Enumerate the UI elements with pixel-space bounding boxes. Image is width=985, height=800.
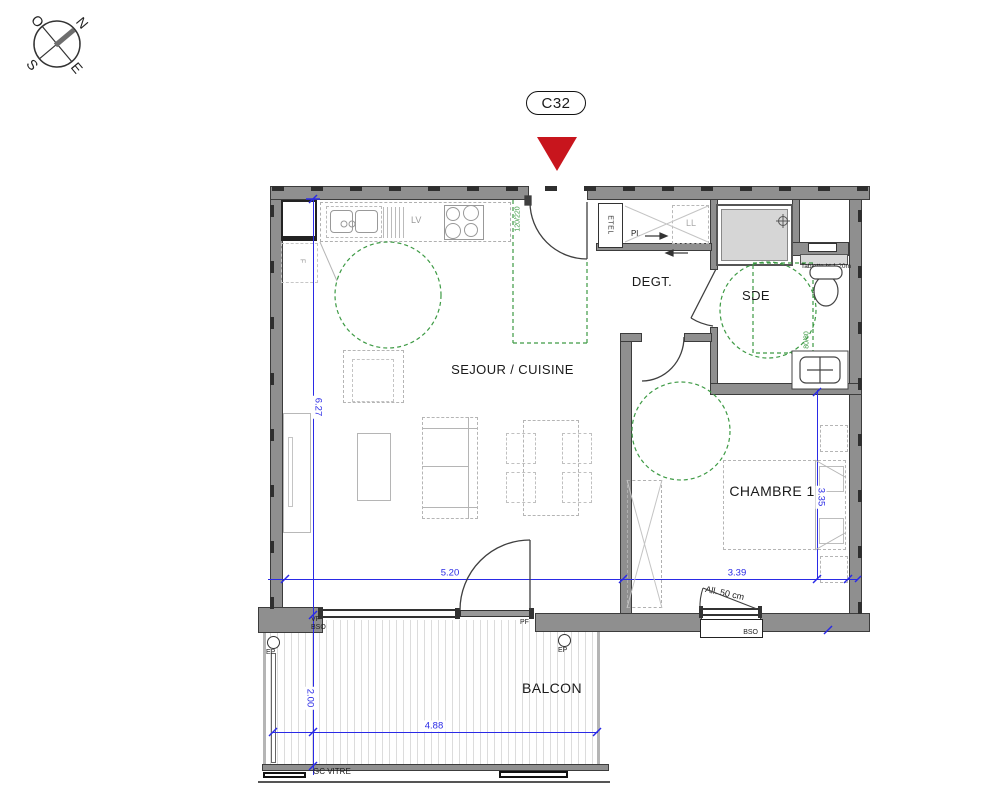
sde-door xyxy=(691,269,716,326)
dim-sejour-depth: 6.27 xyxy=(313,396,324,419)
window-vf xyxy=(320,609,460,618)
sofa-arm-bottom xyxy=(422,507,478,508)
ep-right-label: EP xyxy=(558,647,567,654)
coffee-table xyxy=(357,433,391,501)
compass-icon: N E S O xyxy=(4,0,112,97)
ground-line xyxy=(258,781,610,783)
compass-n: N xyxy=(73,14,92,32)
sofa-divider xyxy=(422,466,468,467)
wall-sde-bottom xyxy=(710,383,862,395)
sink-right xyxy=(355,210,378,233)
sink-left xyxy=(330,210,353,233)
wall-bottom-right xyxy=(760,613,870,632)
ep-left-label: EP xyxy=(266,649,275,656)
shower-size-label: 80/80 xyxy=(804,330,811,350)
dining-chair-2 xyxy=(506,472,536,503)
entry-door xyxy=(525,196,587,259)
washing-machine-label: LL xyxy=(686,218,696,228)
dim-balcon-depth: 2.00 xyxy=(305,687,316,710)
sofa xyxy=(422,417,478,519)
ep-drain-left xyxy=(267,636,280,649)
fridge-label: F xyxy=(299,259,306,263)
room-label-chambre: CHAMBRE 1 xyxy=(722,483,822,499)
door-pf-threshold xyxy=(460,610,531,617)
wall-chambre-door-left xyxy=(620,333,642,342)
allege-label: All. 50 cm xyxy=(704,584,745,602)
unit-badge: C32 xyxy=(526,91,586,115)
fridge-door xyxy=(320,242,337,281)
pillow-bottom xyxy=(819,518,844,544)
tablette-label: Tablette ht 1.20m xyxy=(801,263,851,270)
hob xyxy=(444,205,484,240)
drainboard xyxy=(383,207,405,238)
sideboard-inner xyxy=(288,437,293,507)
toilet-icon xyxy=(810,266,842,306)
chambre-door xyxy=(642,337,684,381)
window-chambre-post-right xyxy=(758,606,762,618)
room-label-sejour: SEJOUR / CUISINE xyxy=(440,362,585,377)
compass-s: S xyxy=(23,56,41,73)
sofa-back xyxy=(468,417,469,519)
dishwasher-label: LV xyxy=(411,215,421,225)
wall-bottom-center xyxy=(535,613,702,632)
entry-door-size-label: 120/220 xyxy=(515,205,522,232)
etel-label: ETEL xyxy=(607,215,614,235)
tablette-tag: Tablette ht 1.20m xyxy=(800,254,848,265)
column-fridge xyxy=(281,200,317,241)
bso-window-label: BSO xyxy=(743,629,758,636)
balcony-right-edge xyxy=(597,632,600,766)
floor-plan: BSO F LV ETEL LL Pl. Tablette ht 1.20m xyxy=(0,0,985,800)
sofa-arm-top xyxy=(422,428,478,429)
dining-chair-1 xyxy=(506,433,536,464)
door-pf-post xyxy=(529,608,534,619)
nightstand-top xyxy=(820,425,848,452)
balcony-glass-divider xyxy=(271,653,276,763)
room-label-degt: DEGT. xyxy=(613,274,691,289)
pf-label: PF xyxy=(520,619,529,626)
dining-chair-4 xyxy=(562,472,592,503)
window-chambre-post-left xyxy=(699,606,703,618)
room-label-balcon: BALCON xyxy=(517,680,587,696)
entry-marker-icon xyxy=(537,137,577,171)
armchair-seat xyxy=(352,359,394,402)
room-label-sde: SDE xyxy=(735,288,777,303)
wall-chambre-door-right xyxy=(684,333,712,342)
closet-label: Pl. xyxy=(631,229,640,238)
dim-sejour-width: 5.20 xyxy=(439,568,462,579)
gc-vitre-label: GC VITRE xyxy=(313,767,351,776)
niche-window xyxy=(808,243,837,252)
compass-e: E xyxy=(68,59,86,76)
dining-chair-3 xyxy=(562,433,592,464)
dim-balcon-width: 4.88 xyxy=(423,721,446,732)
dim-chambre-depth: 3.35 xyxy=(816,486,827,509)
wall-top-right xyxy=(587,186,870,200)
vf-label: VF xyxy=(311,616,320,623)
dim-chambre-width: 3.39 xyxy=(726,568,749,579)
dim-line-horizontal-main xyxy=(268,579,858,580)
bso-left-label: BSO xyxy=(311,624,326,631)
wardrobe xyxy=(627,480,662,608)
wall-right xyxy=(849,199,862,632)
railing-bar-left xyxy=(263,772,306,778)
shower-tray xyxy=(721,209,788,261)
railing-bar-right xyxy=(499,771,568,778)
bso-box: BSO xyxy=(700,619,763,638)
ep-drain-right xyxy=(558,634,571,647)
dim-line-balcony xyxy=(273,732,598,733)
compass-o: O xyxy=(28,12,47,31)
wall-top-left xyxy=(270,186,529,200)
window-chambre xyxy=(702,608,759,616)
pf-door xyxy=(460,540,530,610)
unit-badge-label: C32 xyxy=(541,95,570,112)
